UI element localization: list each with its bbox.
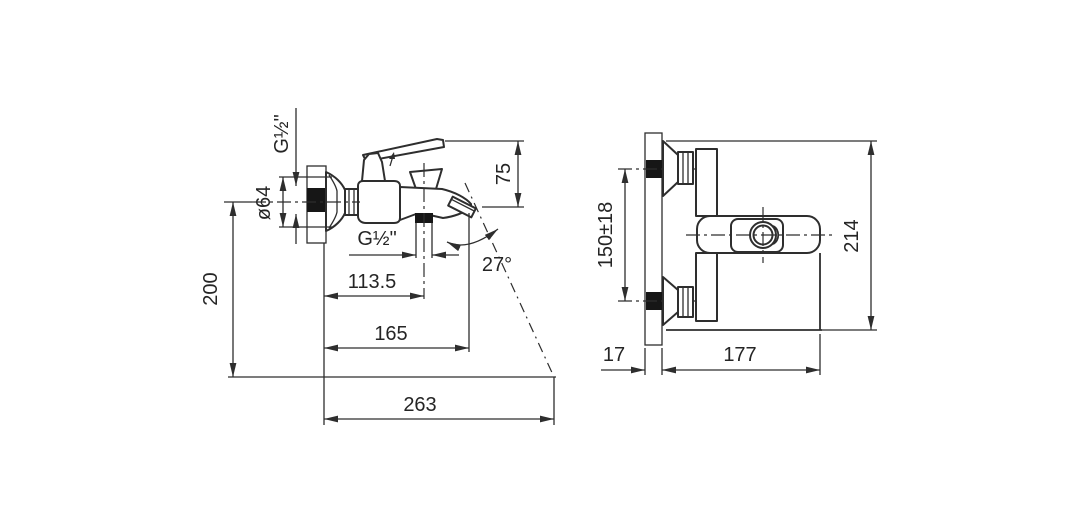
label-spout-angle: 27° bbox=[482, 254, 512, 276]
spout-angle-axis bbox=[465, 183, 554, 377]
valve-body bbox=[358, 181, 400, 223]
label-body-width: 177 bbox=[723, 344, 756, 366]
faucet-dimension-drawing: G½" ø64 200 75 G½" 113.5 165 263 27° bbox=[0, 0, 1090, 528]
inlet-pipe-section bbox=[307, 188, 325, 212]
bottom-escutcheon bbox=[663, 277, 678, 325]
label-inlet-thread: G½" bbox=[271, 114, 293, 153]
faucet-side bbox=[326, 139, 476, 258]
side-view: G½" ø64 200 75 G½" 113.5 165 263 27° bbox=[200, 108, 556, 425]
label-hole-spacing: 150±18 bbox=[595, 202, 617, 269]
body-column-lower bbox=[696, 253, 717, 321]
label-overall-height: 214 bbox=[841, 219, 863, 252]
label-wall-to-outlet: 113.5 bbox=[348, 271, 397, 293]
label-flange-diameter: ø64 bbox=[253, 186, 275, 220]
top-escutcheon bbox=[663, 141, 678, 196]
bottom-nut bbox=[678, 287, 693, 317]
label-spout-height: 75 bbox=[493, 163, 515, 185]
diverter-knob bbox=[410, 169, 442, 189]
technical-drawing-canvas: G½" ø64 200 75 G½" 113.5 165 263 27° bbox=[0, 0, 1090, 528]
label-outlet-thread: G½" bbox=[357, 228, 396, 250]
label-wall-offset: 17 bbox=[603, 344, 625, 366]
label-wall-height: 200 bbox=[200, 272, 222, 305]
body-column-upper bbox=[696, 149, 717, 216]
label-spout-reach: 165 bbox=[374, 323, 407, 345]
top-nut bbox=[678, 152, 693, 184]
label-max-reach: 263 bbox=[403, 394, 436, 416]
front-view: 150±18 214 17 177 bbox=[595, 133, 877, 375]
